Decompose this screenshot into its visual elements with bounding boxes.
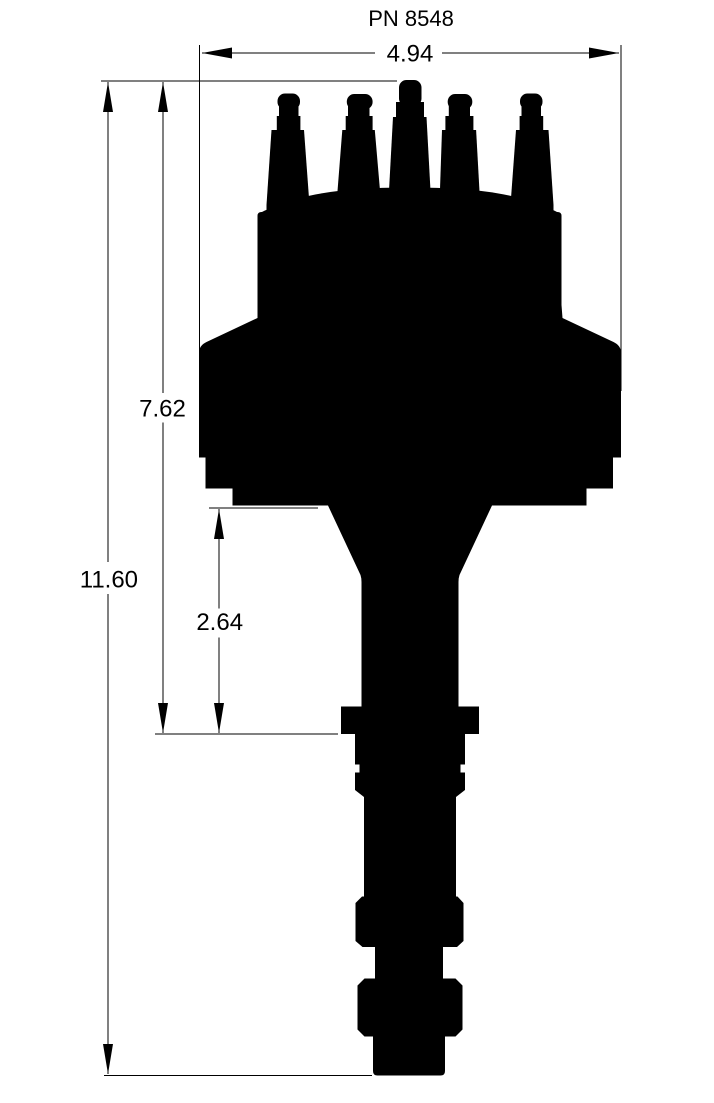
svg-text:2.64: 2.64 — [196, 609, 243, 636]
svg-text:7.62: 7.62 — [139, 396, 186, 423]
svg-text:4.94: 4.94 — [387, 41, 434, 68]
svg-text:11.60: 11.60 — [80, 567, 138, 594]
svg-text:PN 8548: PN 8548 — [368, 6, 454, 31]
